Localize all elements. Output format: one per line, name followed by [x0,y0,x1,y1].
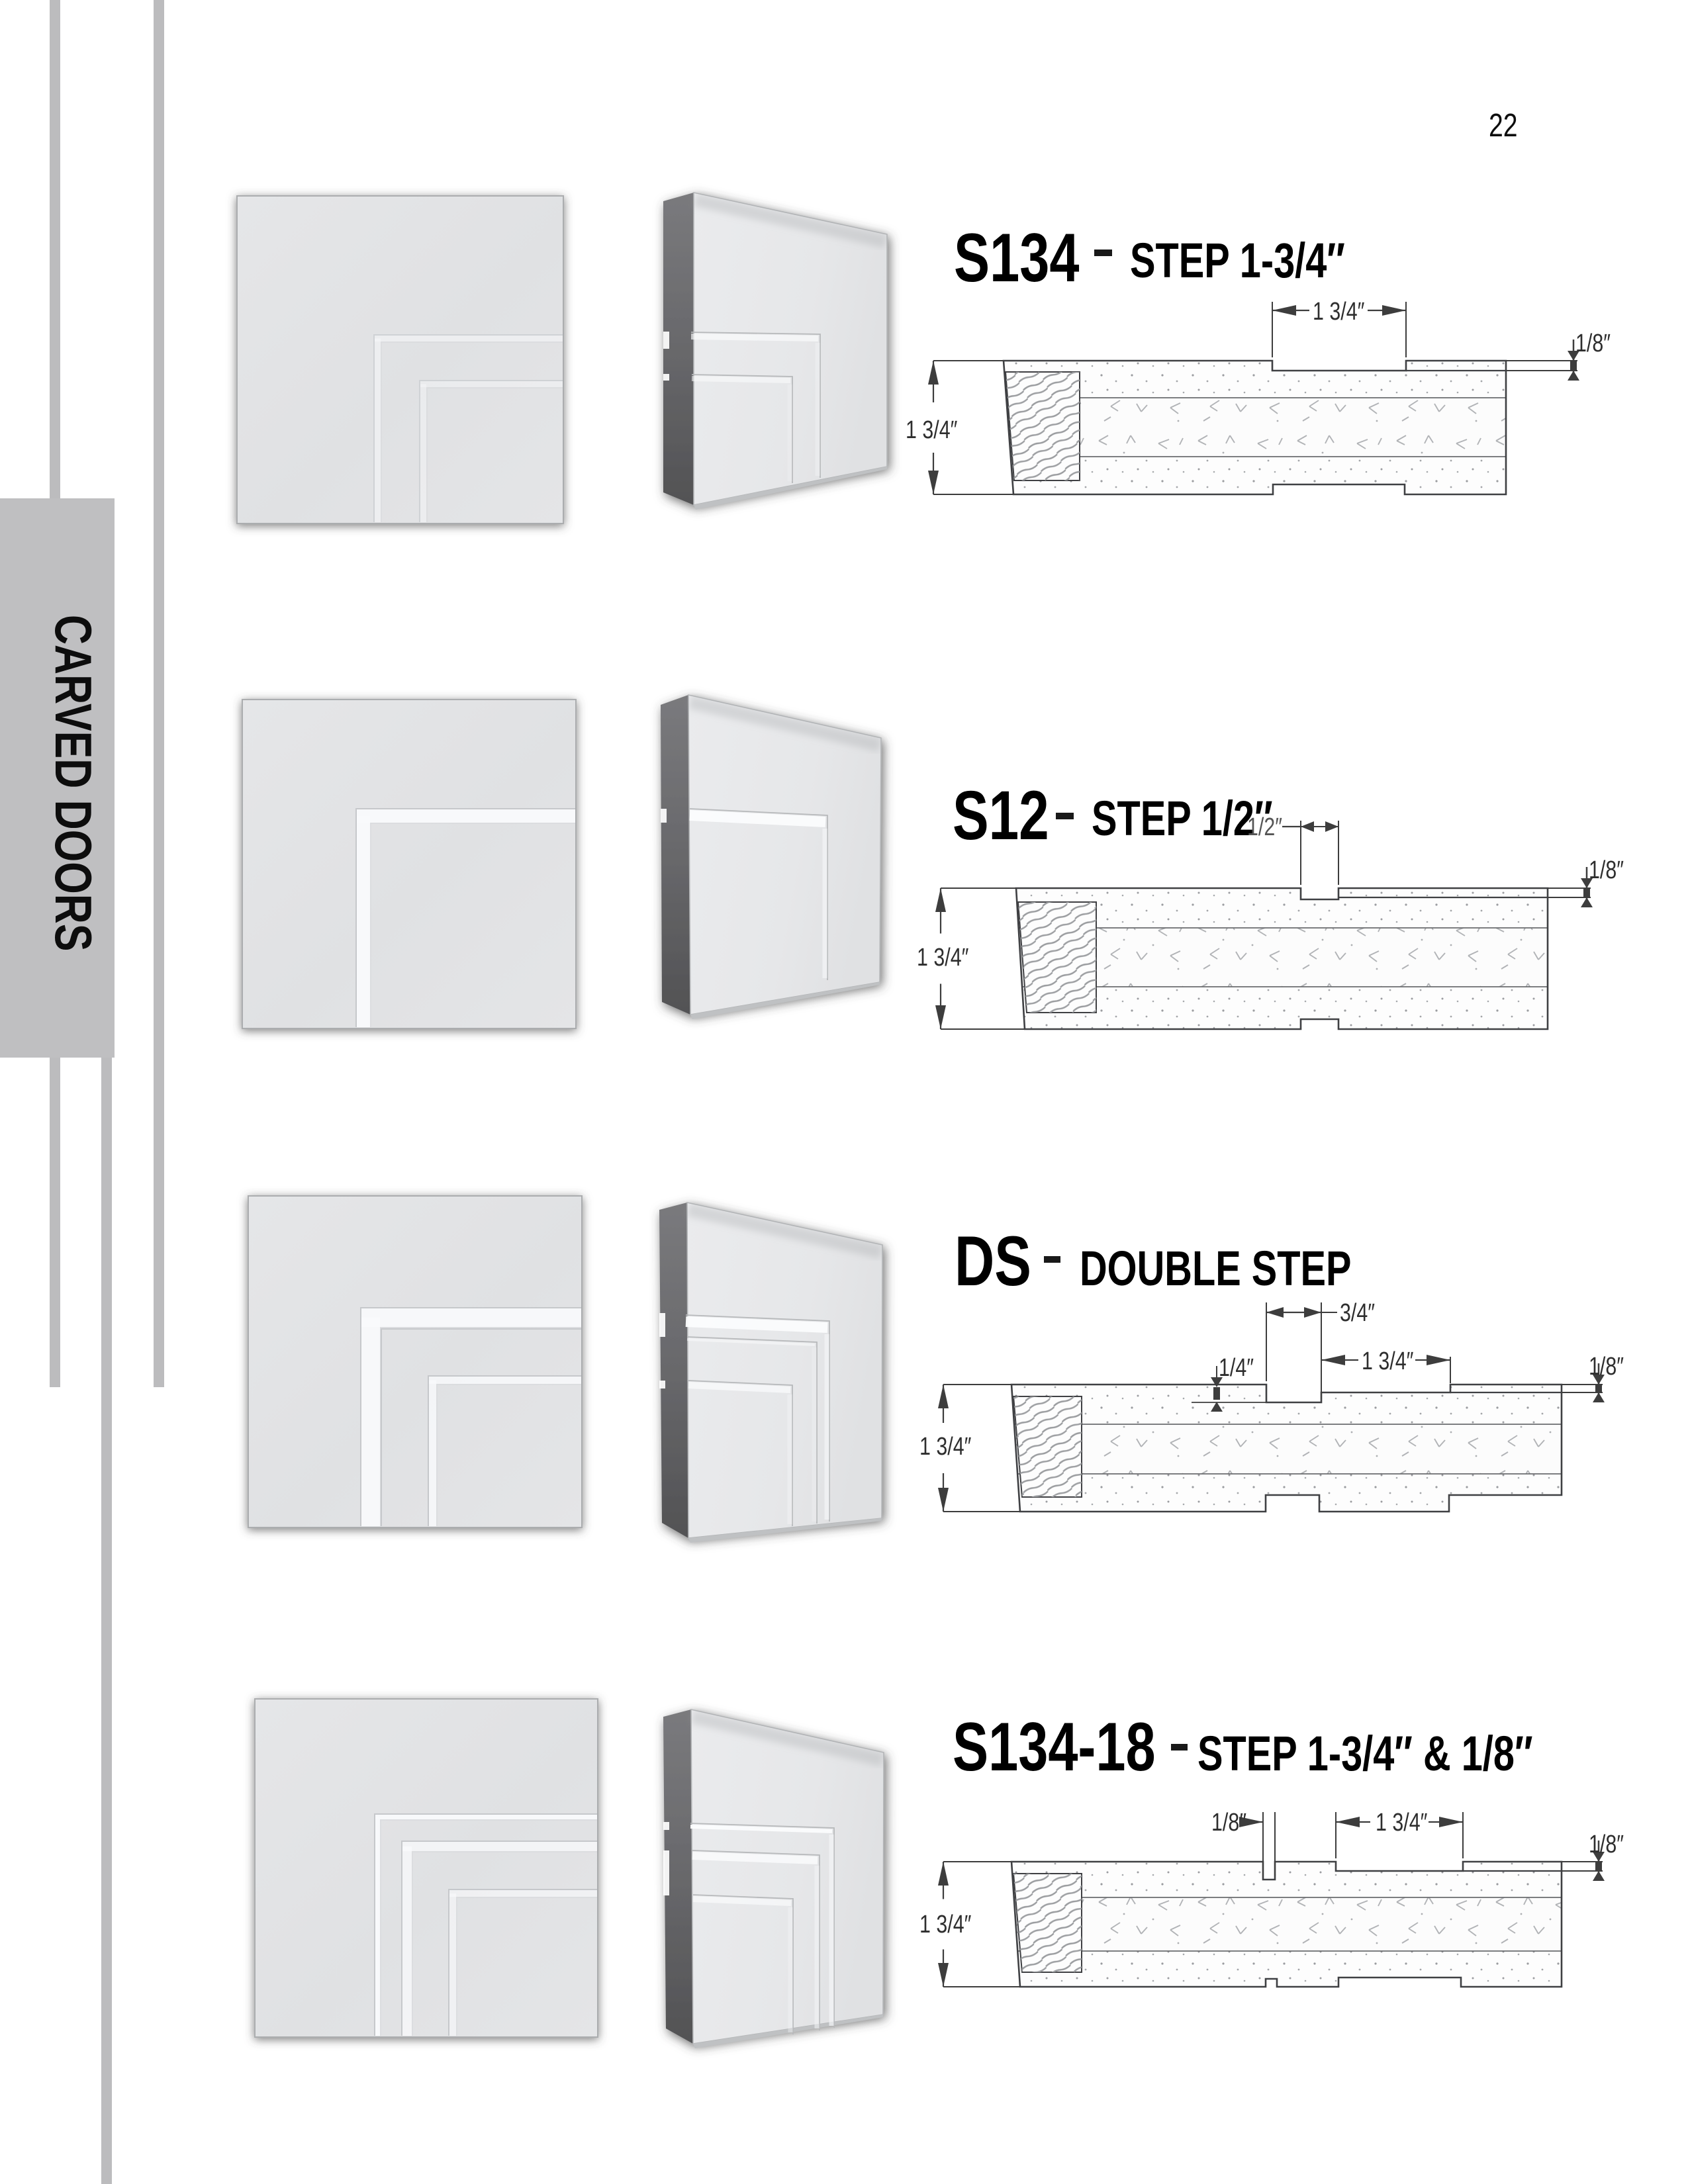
svg-text:1 3/4″: 1 3/4″ [1362,1347,1413,1375]
svg-text:STEP 1-3/4″: STEP 1-3/4″ [1130,234,1345,289]
svg-text:S134-18: S134-18 [953,1708,1156,1785]
svg-text:1 3/4″: 1 3/4″ [919,1433,971,1461]
svg-text:S12: S12 [953,776,1049,854]
svg-text:1/8″: 1/8″ [1211,1809,1246,1837]
svg-text:1/8″: 1/8″ [1589,856,1624,884]
svg-text:3/4″: 3/4″ [1340,1299,1375,1327]
svg-text:1/8″: 1/8″ [1575,330,1611,357]
svg-text:CARVED DOORS: CARVED DOORS [44,615,102,951]
svg-text:1/4″: 1/4″ [1219,1354,1254,1382]
svg-text:1/2″: 1/2″ [1247,813,1282,841]
svg-text:1 3/4″: 1 3/4″ [1376,1809,1427,1837]
svg-text:22: 22 [1489,108,1518,144]
svg-text:1/8″: 1/8″ [1589,1353,1624,1381]
svg-text:S134: S134 [954,219,1080,296]
svg-text:1 3/4″: 1 3/4″ [917,944,968,972]
svg-text:1/8″: 1/8″ [1589,1831,1624,1858]
svg-text:1 3/4″: 1 3/4″ [906,416,957,444]
svg-text:STEP 1/2″: STEP 1/2″ [1092,792,1273,846]
svg-text:DS: DS [955,1222,1031,1300]
svg-text:STEP 1-3/4″ & 1/8″: STEP 1-3/4″ & 1/8″ [1197,1727,1533,1782]
svg-text:1 3/4″: 1 3/4″ [919,1911,971,1938]
svg-text:DOUBLE STEP: DOUBLE STEP [1080,1242,1351,1297]
svg-text:1 3/4″: 1 3/4″ [1313,298,1364,326]
